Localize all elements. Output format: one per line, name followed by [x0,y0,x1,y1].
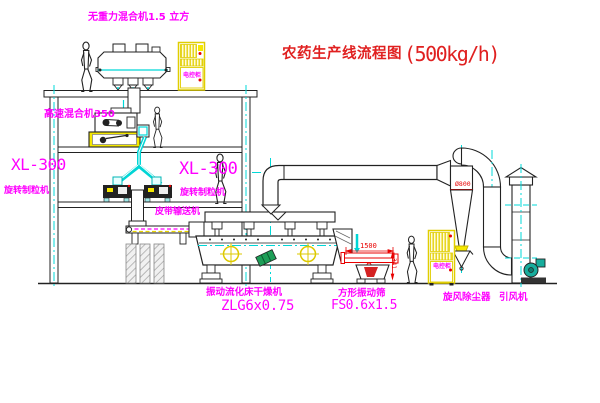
granulator-left [100,177,134,202]
conveyor-support [154,244,164,283]
granulator-down-duct [129,190,146,226]
person-ground [407,236,418,282]
conveyor-support [126,244,136,283]
process-flow-diagram: 无重力混合机1.5 立方 农药生产线流程图 (500kg/h) 高速混合机350… [0,0,600,403]
drawing-canvas [0,0,600,403]
control-cabinet-right [429,231,455,286]
cyclone-flap-valve [455,246,468,251]
control-cabinet-top [179,43,205,91]
gravity-free-mixer [96,44,170,113]
granulator-right [141,177,175,202]
fluid-bed-dryer [189,205,340,283]
person-roof [81,42,92,91]
belt-conveyor [126,226,197,283]
square-vibrating-sieve [333,229,398,283]
person-third-floor [215,154,226,203]
conveyor-support [140,244,150,283]
person-second-floor [153,107,162,148]
